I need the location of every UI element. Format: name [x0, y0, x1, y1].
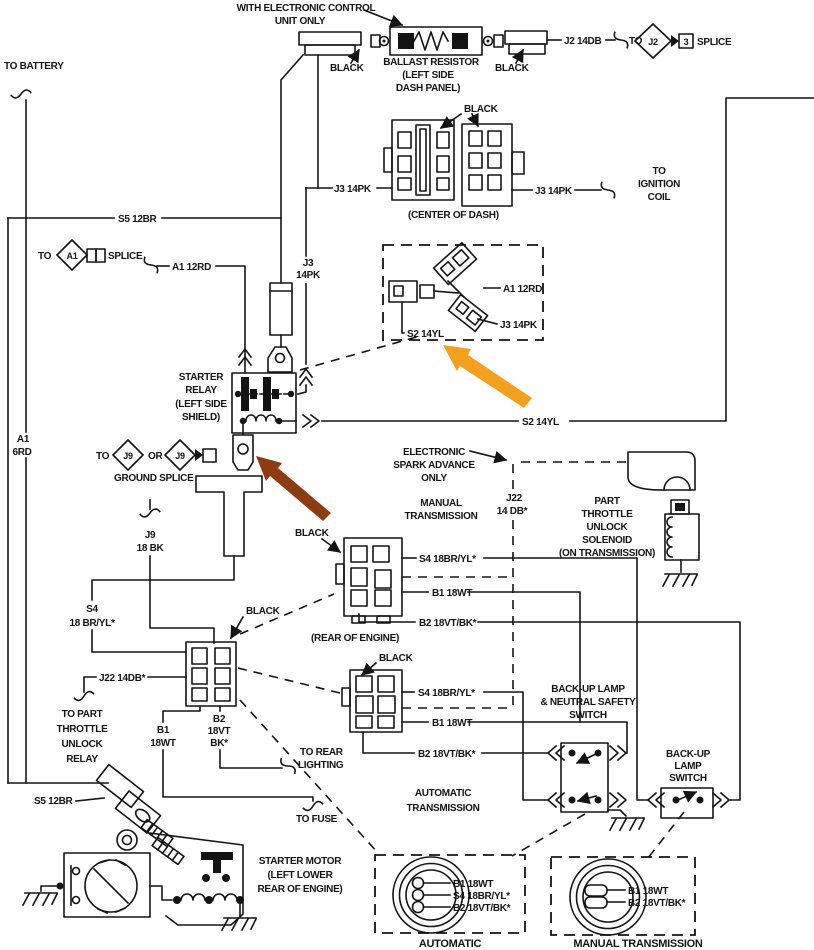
- ballast-resistor-section: WITH ELECTRONIC CONTROL UNIT ONLY BLACK …: [237, 3, 732, 94]
- wire-label-s2-main: S2 14YL: [522, 417, 559, 428]
- to-rear-lighting-2: LIGHTING: [298, 760, 344, 771]
- wire-label-j9-2: 18 BK: [137, 543, 165, 554]
- ns-switch-label-1: BACK-UP LAMP: [551, 684, 625, 695]
- to-ignition-coil-3: COIL: [648, 192, 671, 203]
- starter-motor-caption-3: REAR OF ENGINE): [258, 884, 343, 895]
- bu-switch-label-3: SWITCH: [669, 773, 707, 784]
- ballast-caption-2: (LEFT SIDE: [402, 70, 454, 81]
- wire-label-b2-manual: B2 18VT/BK*: [419, 618, 477, 629]
- center-of-dash-caption: (CENTER OF DASH): [408, 210, 499, 221]
- starter-relay-section: J3 14PK STARTER RELAY (LEFT SIDE SHIELD)…: [175, 55, 814, 470]
- wire-label-j3-left: J3 14PK: [334, 184, 372, 195]
- wire-label-b1-auto: B1 18WT: [432, 718, 472, 729]
- to-ignition-coil-2: IGNITION: [638, 179, 680, 190]
- j9-diamond-1: J9: [123, 451, 133, 461]
- wire-label-b2-auto: B2 18VT/BK*: [418, 749, 476, 760]
- j2-splice-label: SPLICE: [697, 37, 732, 48]
- wire-label-j3-relay-1: J3: [303, 258, 314, 269]
- automatic-transmission-caption-1: AUTOMATIC: [415, 788, 471, 799]
- bu-switch-label-2: LAMP: [674, 761, 702, 772]
- manual-trans-title-1: MANUAL: [420, 498, 462, 509]
- hbox-label-a1: A1 12RD: [503, 284, 542, 295]
- to-ptu-relay-1: TO PART: [62, 709, 103, 720]
- relay-caption-1: STARTER: [179, 372, 224, 383]
- wire-label-a1-6rd-1: A1: [17, 434, 30, 445]
- wire-label-a1-6rd-2: 6RD: [12, 447, 31, 458]
- ptu-solenoid-label-1: PART: [594, 496, 619, 507]
- starter-motor-caption-2: (LEFT LOWER: [267, 870, 333, 881]
- wire-label-j22-1: J22: [506, 493, 523, 504]
- starter-motor-caption-1: STARTER MOTOR: [259, 856, 342, 867]
- black-label-left-conn: BLACK: [246, 606, 281, 617]
- manual-view-caption: MANUAL TRANSMISSION: [573, 938, 703, 950]
- automatic-transmission-connector-section: BLACK S4 18BR/YL* B1 18WT B2 18VT/BK* AU…: [342, 653, 627, 814]
- starter-motor-section: S5 12BR STARTER MOTOR (LEFT LOWER REAR: [8, 765, 342, 930]
- ground-splice-section: TO J9 OR J9 GROUND SPLICE: [96, 440, 216, 484]
- to-rear-lighting-1: TO REAR: [300, 747, 344, 758]
- ballast-caption-1: BALLAST RESISTOR: [383, 57, 480, 68]
- manual-view-label-b2: B2 18VT/BK*: [628, 898, 686, 909]
- auto-view-label-b2: B2 18VT/BK*: [453, 903, 511, 914]
- auto-view-caption: AUTOMATIC: [419, 938, 482, 950]
- to-ptu-relay-4: RELAY: [66, 754, 98, 765]
- to-ptu-relay-3: UNLOCK: [62, 739, 104, 750]
- relay-caption-3: (LEFT SIDE: [175, 399, 227, 410]
- wire-label-s4-auto: S4 18BR/YL*: [418, 688, 475, 699]
- brown-annotation-arrow: [256, 456, 331, 521]
- manual-connector-view: B1 18WT B2 18VT/BK* MANUAL TRANSMISSION: [551, 857, 703, 950]
- wire-label-b1-manual: B1 18WT: [432, 588, 472, 599]
- orange-annotation-arrow: [443, 345, 532, 408]
- wire-label-a1-12rd: A1 12RD: [172, 262, 211, 273]
- black-label-ballast-right: BLACK: [495, 63, 530, 74]
- wiring-diagram: WITH ELECTRONIC CONTROL UNIT ONLY BLACK …: [0, 0, 814, 950]
- automatic-transmission-caption-2: TRANSMISSION: [406, 803, 479, 814]
- wire-label-j22-2: 14 DB*: [497, 506, 528, 517]
- to-battery-label: TO BATTERY: [4, 61, 64, 72]
- black-label-auto-conn: BLACK: [379, 653, 414, 664]
- ptu-solenoid-label-4: SOLENOID: [582, 535, 632, 546]
- a1-splice-label: SPLICE: [108, 251, 143, 262]
- esa-label-2: SPARK ADVANCE: [393, 460, 475, 471]
- electronic-spark-advance-section: ELECTRONIC SPARK ADVANCE ONLY J22 14 DB*…: [393, 447, 699, 708]
- ns-switch-label-3: SWITCH: [569, 710, 607, 721]
- ground-splice-to: TO: [96, 451, 110, 462]
- wire-label-s5-bottom: S5 12BR: [34, 796, 74, 807]
- j2-splice-number: 3: [684, 37, 689, 47]
- to-fuse-label: TO FUSE: [296, 814, 338, 825]
- ptu-solenoid-label-2: THROTTLE: [582, 509, 634, 520]
- relay-caption-4: SHIELD): [182, 412, 220, 423]
- j9-diamond-2: J9: [175, 451, 185, 461]
- bu-switch-label-1: BACK-UP: [666, 749, 711, 760]
- black-label-manual-conn: BLACK: [295, 528, 330, 539]
- wire-label-j3-relay-2: 14PK: [296, 270, 321, 281]
- a1-splice-diamond: A1: [67, 251, 78, 261]
- black-label-ballast-left: BLACK: [330, 63, 365, 74]
- ground-splice-or: OR: [148, 451, 163, 462]
- wire-label-b2-left-3: BK*: [210, 738, 228, 749]
- manual-trans-title-2: TRANSMISSION: [404, 511, 477, 522]
- to-a1-splice-to: TO: [38, 251, 52, 262]
- wire-label-j2-14db: J2 14DB: [564, 36, 601, 47]
- black-label-dash: BLACK: [464, 104, 499, 115]
- to-ignition-coil-1: TO: [652, 166, 666, 177]
- wire-label-j9-1: J9: [145, 530, 156, 541]
- wire-label-b1-left-2: 18WT: [150, 738, 176, 749]
- ballast-caption-3: DASH PANEL): [396, 83, 460, 94]
- wire-label-j3-right: J3 14PK: [535, 186, 573, 197]
- wire-label-s5-top: S5 12BR: [118, 214, 158, 225]
- j2-splice-diamond: J2: [648, 37, 658, 47]
- esa-label-3: ONLY: [421, 473, 447, 484]
- wire-label-b2-left-1: B2: [213, 714, 226, 725]
- ptu-solenoid-label-3: UNLOCK: [587, 522, 629, 533]
- center-of-dash-section: BLACK J3 14PK J3 14PK TO IGNITION COIL (…: [306, 104, 680, 221]
- wire-label-b1-left-1: B1: [157, 725, 170, 736]
- hbox-label-j3: J3 14PK: [500, 320, 538, 331]
- relay-caption-2: RELAY: [185, 385, 217, 396]
- wire-label-j22-left: J22 14DB*: [99, 673, 146, 684]
- automatic-connector-view: B1 18WT S4 18BR/YL* B2 18VT/BK* AUTOMATI…: [375, 855, 525, 950]
- wire-label-s4-left-1: S4: [86, 604, 98, 615]
- wire-label-b2-left-2: 18VT: [208, 726, 231, 737]
- auto-view-label-b1: B1 18WT: [453, 879, 493, 890]
- wiring-diagram-page: WITH ELECTRONIC CONTROL UNIT ONLY BLACK …: [0, 0, 814, 950]
- wire-label-s4-manual: S4 18BR/YL*: [419, 554, 476, 565]
- to-ptu-relay-2: THROTTLE: [57, 724, 109, 735]
- ns-switch-label-2: & NEUTRAL SAFETY: [540, 697, 636, 708]
- harness-detail-box: A1 12RD J3 14PK S2 14YL: [383, 243, 543, 340]
- ground-splice-caption: GROUND SPLICE: [114, 473, 194, 484]
- esa-label-1: ELECTRONIC: [403, 447, 465, 458]
- auto-view-label-s4: S4 18BR/YL*: [453, 891, 510, 902]
- rear-of-engine-caption: (REAR OF ENGINE): [311, 633, 399, 644]
- note-ecu-line1: WITH ELECTRONIC CONTROL: [237, 3, 376, 14]
- note-ecu-line2: UNIT ONLY: [275, 16, 326, 27]
- neutral-safety-switch-section: BACK-UP LAMP & NEUTRAL SAFETY SWITCH: [540, 684, 644, 830]
- backup-lamp-switch-section: BACK-UP LAMP SWITCH: [648, 749, 729, 818]
- manual-view-label-b1: B1 18WT: [628, 886, 668, 897]
- wire-label-s4-left-2: 18 BR/YL*: [69, 618, 115, 629]
